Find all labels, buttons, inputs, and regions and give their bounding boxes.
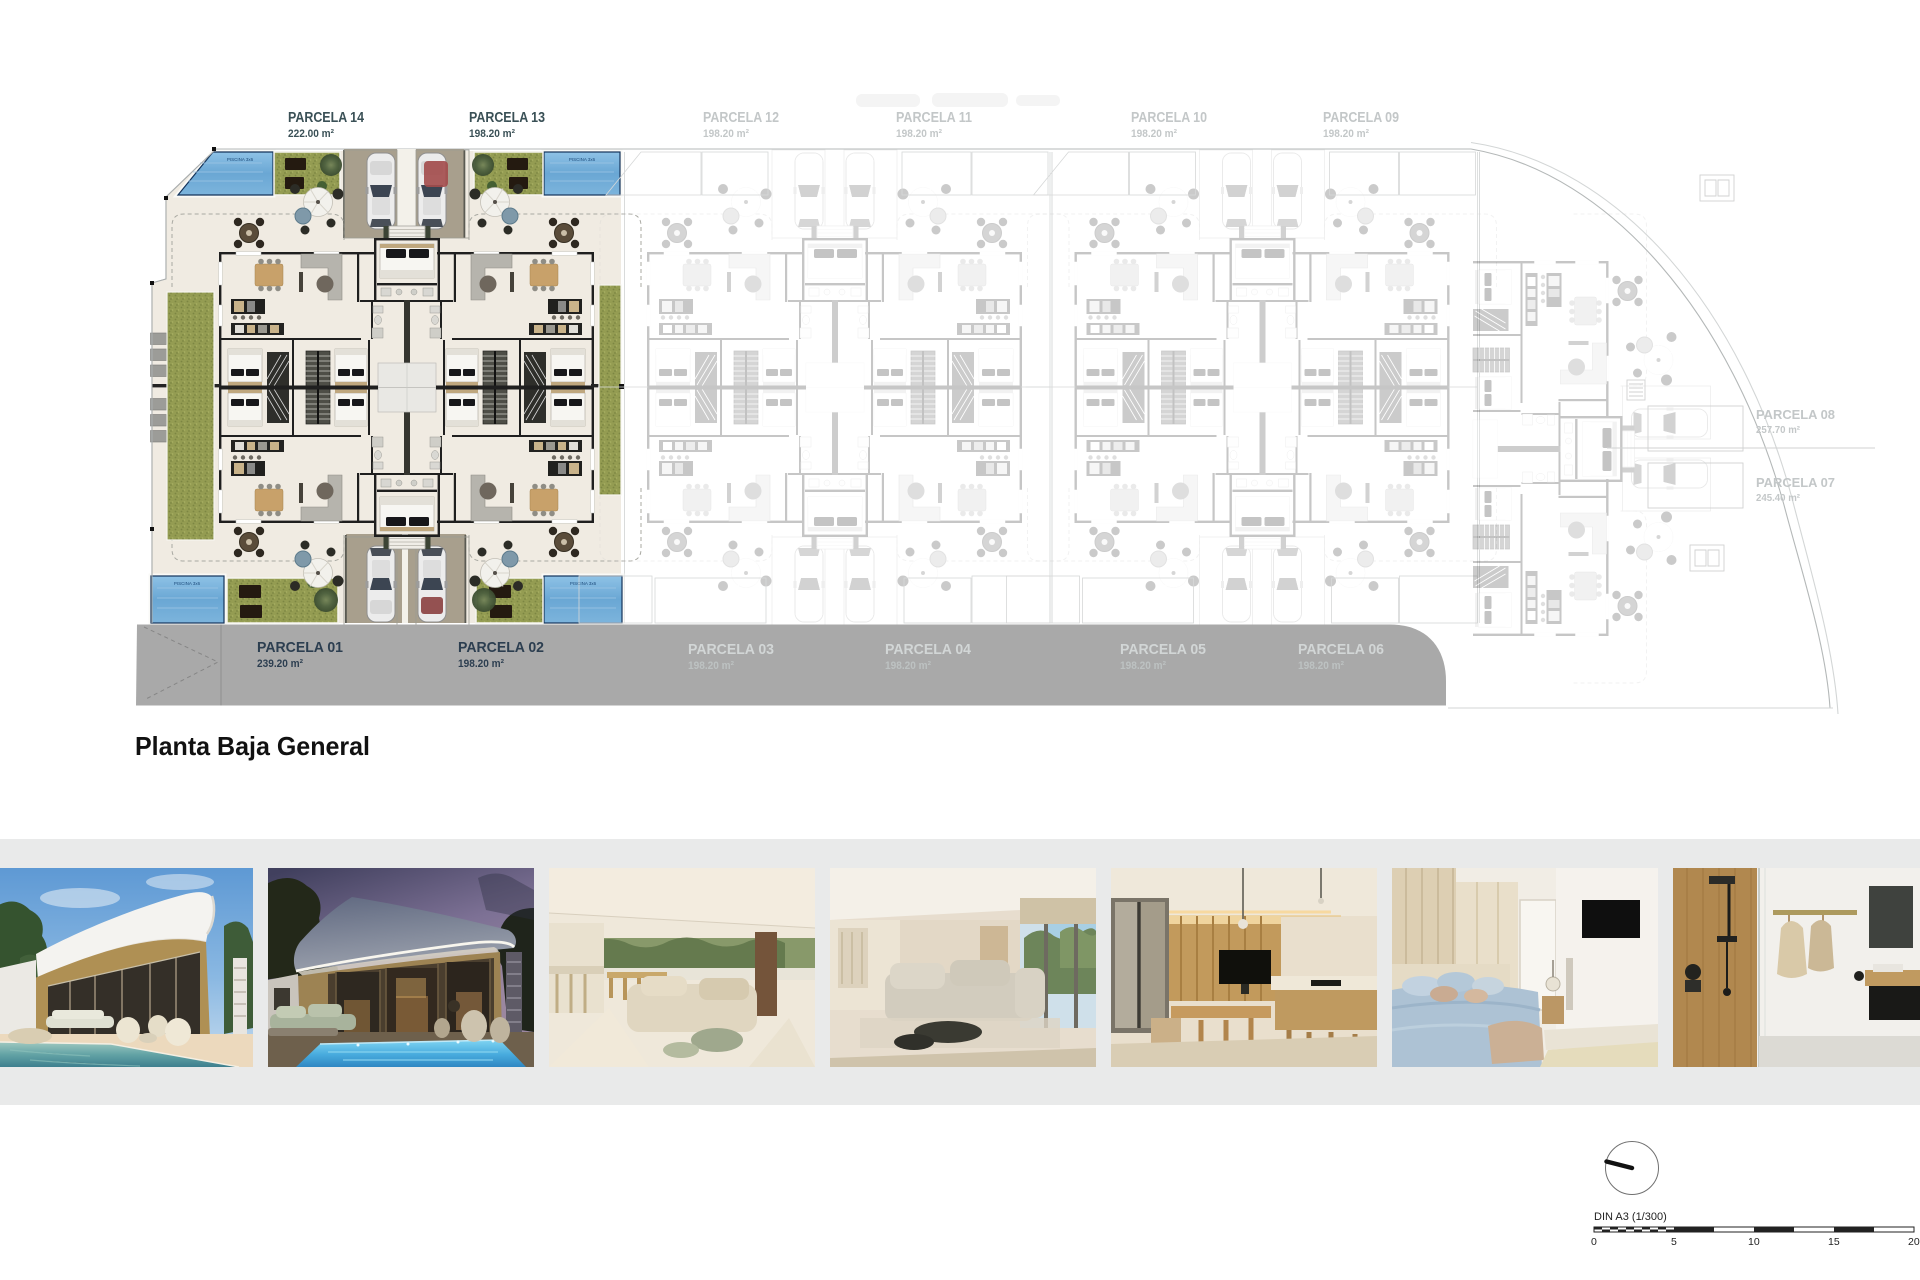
svg-text:245.40 m²: 245.40 m² bbox=[1756, 493, 1801, 504]
svg-text:PARCELA 03: PARCELA 03 bbox=[688, 641, 774, 658]
svg-text:PARCELA 01: PARCELA 01 bbox=[257, 639, 343, 656]
svg-text:PARCELA 14: PARCELA 14 bbox=[288, 110, 364, 126]
svg-text:PARCELA 07: PARCELA 07 bbox=[1756, 475, 1835, 490]
svg-text:PARCELA 13: PARCELA 13 bbox=[469, 110, 545, 126]
svg-text:10: 10 bbox=[1748, 1236, 1760, 1248]
svg-text:15: 15 bbox=[1828, 1236, 1840, 1248]
svg-text:198.20 m²: 198.20 m² bbox=[1120, 660, 1166, 672]
svg-text:PARCELA 09: PARCELA 09 bbox=[1323, 110, 1399, 126]
svg-text:PISCINA 3x6: PISCINA 3x6 bbox=[570, 581, 597, 586]
svg-text:PARCELA 11: PARCELA 11 bbox=[896, 110, 972, 126]
svg-text:PARCELA 04: PARCELA 04 bbox=[885, 641, 972, 658]
svg-text:198.20 m²: 198.20 m² bbox=[703, 128, 749, 140]
svg-text:PARCELA 06: PARCELA 06 bbox=[1298, 641, 1384, 658]
svg-text:257.70 m²: 257.70 m² bbox=[1756, 425, 1801, 436]
svg-text:PARCELA 12: PARCELA 12 bbox=[703, 110, 779, 126]
svg-text:PARCELA 02: PARCELA 02 bbox=[458, 639, 544, 656]
svg-text:PARCELA 10: PARCELA 10 bbox=[1131, 110, 1207, 126]
svg-text:PISCINA 3x6: PISCINA 3x6 bbox=[569, 157, 596, 162]
svg-text:198.20 m²: 198.20 m² bbox=[1323, 128, 1369, 140]
svg-text:198.20 m²: 198.20 m² bbox=[1131, 128, 1177, 140]
svg-text:198.20 m²: 198.20 m² bbox=[885, 660, 931, 672]
svg-text:PARCELA 05: PARCELA 05 bbox=[1120, 641, 1206, 658]
svg-text:Planta Baja General: Planta Baja General bbox=[135, 731, 370, 761]
svg-text:0: 0 bbox=[1591, 1236, 1597, 1248]
svg-text:PARCELA 08: PARCELA 08 bbox=[1756, 407, 1835, 422]
svg-text:5: 5 bbox=[1671, 1236, 1677, 1248]
svg-text:198.20 m²: 198.20 m² bbox=[458, 658, 504, 670]
svg-text:198.20 m²: 198.20 m² bbox=[1298, 660, 1344, 672]
svg-text:239.20 m²: 239.20 m² bbox=[257, 658, 303, 670]
svg-text:198.20 m²: 198.20 m² bbox=[896, 128, 942, 140]
svg-text:198.20 m²: 198.20 m² bbox=[688, 660, 734, 672]
svg-text:PISCINA 3x6: PISCINA 3x6 bbox=[174, 581, 201, 586]
svg-text:198.20 m²: 198.20 m² bbox=[469, 128, 515, 140]
svg-text:222.00 m²: 222.00 m² bbox=[288, 128, 334, 140]
svg-text:20: 20 bbox=[1908, 1236, 1920, 1248]
svg-text:PISCINA 3x6: PISCINA 3x6 bbox=[227, 157, 254, 162]
